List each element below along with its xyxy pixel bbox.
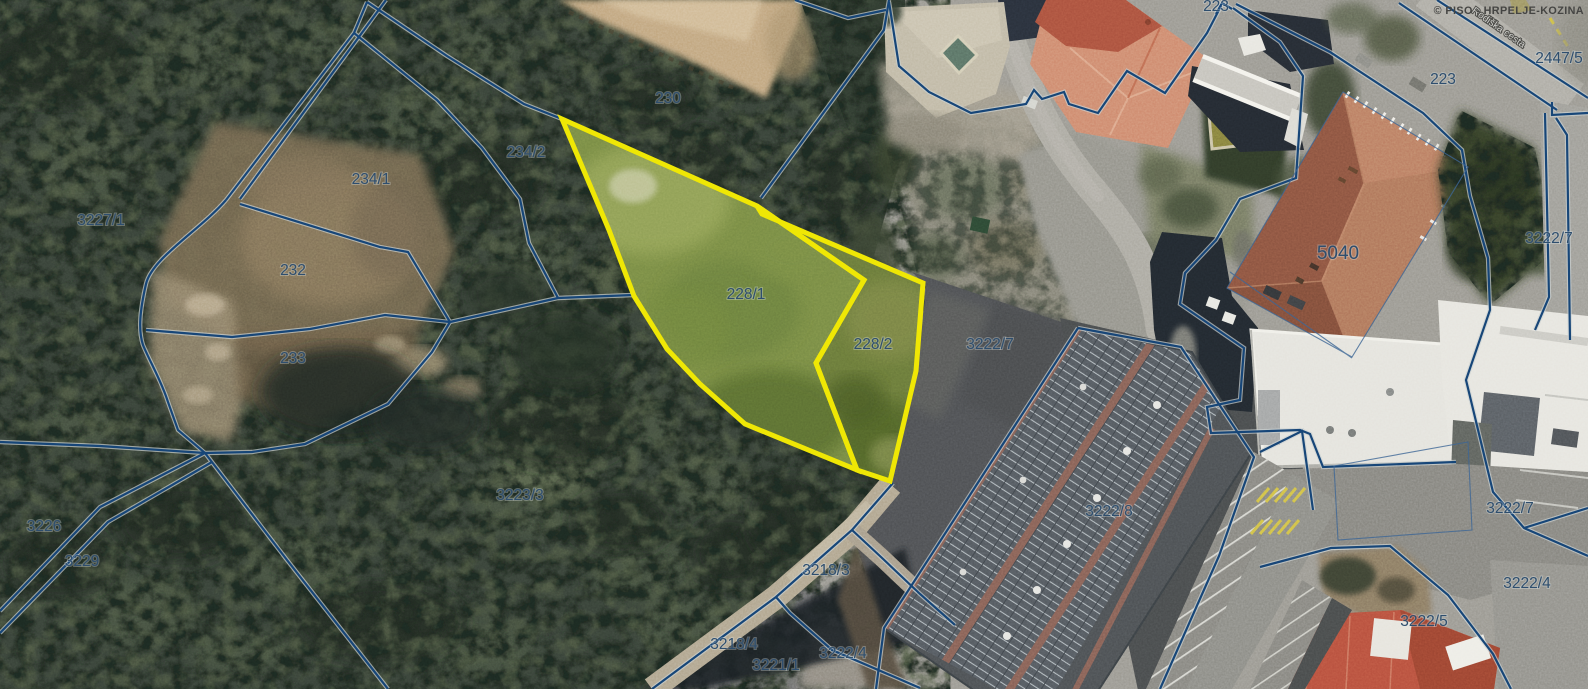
svg-text:230: 230 (655, 90, 681, 107)
svg-text:3222/7: 3222/7 (1525, 230, 1572, 247)
svg-text:5040: 5040 (1317, 243, 1359, 264)
svg-text:233: 233 (280, 350, 306, 367)
svg-text:3222/8: 3222/8 (1085, 503, 1132, 520)
svg-text:3226: 3226 (27, 518, 61, 535)
svg-text:3229: 3229 (65, 553, 99, 570)
svg-text:3227/1: 3227/1 (77, 212, 124, 229)
svg-text:228/1: 228/1 (727, 286, 766, 303)
svg-text:3222/7: 3222/7 (1486, 500, 1533, 517)
svg-text:223: 223 (1203, 0, 1229, 15)
svg-text:© PISO - HRPELJE-KOZINA: © PISO - HRPELJE-KOZINA (1434, 5, 1584, 17)
svg-text:234/2: 234/2 (507, 144, 546, 161)
svg-text:3222/4: 3222/4 (1503, 575, 1551, 592)
svg-text:3222/5: 3222/5 (1400, 613, 1447, 630)
svg-text:3222/4: 3222/4 (819, 645, 867, 662)
svg-text:3221/1: 3221/1 (752, 657, 799, 674)
svg-text:234/1: 234/1 (352, 171, 391, 188)
svg-text:232: 232 (280, 262, 306, 279)
svg-text:3223/3: 3223/3 (496, 487, 543, 504)
svg-text:223: 223 (1430, 71, 1456, 88)
svg-text:3218/4: 3218/4 (710, 636, 758, 653)
svg-text:3222/7: 3222/7 (966, 336, 1013, 353)
svg-text:2447/5: 2447/5 (1535, 50, 1582, 67)
svg-text:228/2: 228/2 (854, 336, 893, 353)
svg-text:3218/3: 3218/3 (802, 562, 849, 579)
